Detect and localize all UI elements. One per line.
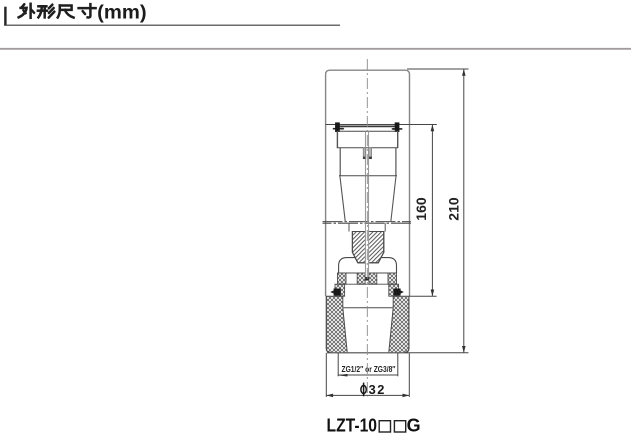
svg-text:LZT-10: LZT-10 — [327, 416, 378, 436]
svg-text:G: G — [407, 416, 421, 436]
svg-text:210: 210 — [446, 197, 462, 221]
svg-text:ZG1/2″ or ZG3/8″: ZG1/2″ or ZG3/8″ — [342, 364, 396, 374]
svg-text:(mm): (mm) — [97, 2, 147, 23]
svg-text:160: 160 — [413, 197, 429, 221]
svg-text:32: 32 — [369, 382, 386, 397]
